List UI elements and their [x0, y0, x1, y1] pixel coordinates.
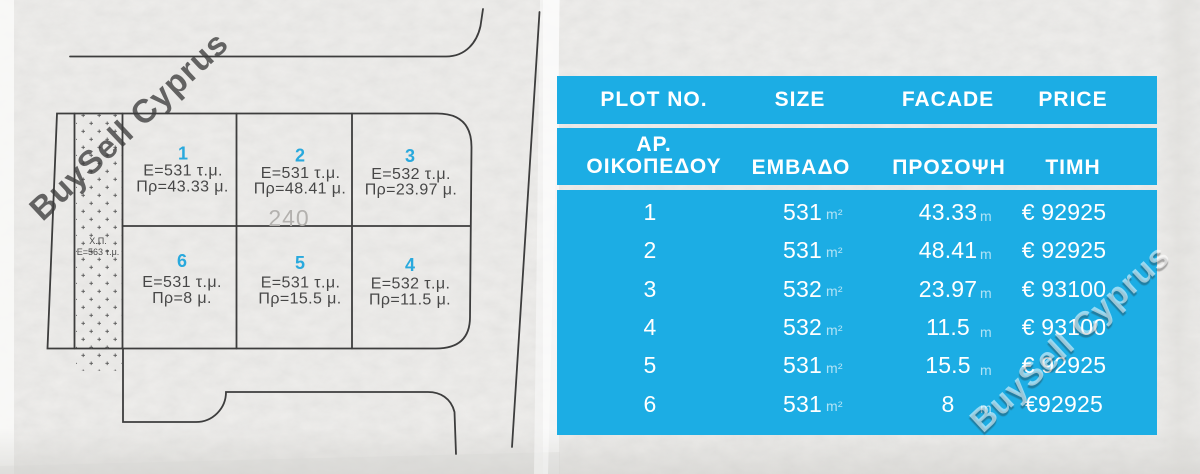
svg-text:E=531 τ.μ.: E=531 τ.μ.	[261, 165, 341, 182]
svg-text:3: 3	[405, 146, 415, 166]
svg-text:2: 2	[295, 146, 305, 166]
svg-text:Πρ=23.97 μ.: Πρ=23.97 μ.	[365, 182, 458, 199]
svg-text:E=563 τ.μ.: E=563 τ.μ.	[77, 247, 120, 257]
svg-text:5: 5	[295, 253, 305, 273]
svg-text:E=531 τ.μ.: E=531 τ.μ.	[261, 275, 341, 292]
svg-text:Πρ=15.5 μ.: Πρ=15.5 μ.	[258, 291, 341, 308]
svg-text:E=531 τ.μ.: E=531 τ.μ.	[143, 163, 223, 180]
svg-text:Πρ=48.41 μ.: Πρ=48.41 μ.	[254, 181, 347, 198]
svg-text:E=532 τ.μ.: E=532 τ.μ.	[371, 166, 451, 183]
svg-text:Πρ=11.5 μ.: Πρ=11.5 μ.	[369, 292, 451, 309]
svg-text:E=531 τ.μ.: E=531 τ.μ.	[142, 274, 222, 291]
svg-text:1: 1	[178, 144, 188, 164]
svg-text:Πρ=43.33 μ.: Πρ=43.33 μ.	[136, 179, 229, 196]
svg-text:Πρ=8 μ.: Πρ=8 μ.	[152, 290, 212, 307]
svg-text:Χ.Π.: Χ.Π.	[89, 236, 107, 246]
svg-text:4: 4	[405, 255, 415, 275]
svg-text:240: 240	[268, 205, 309, 231]
svg-text:E=532 τ.μ.: E=532 τ.μ.	[371, 276, 451, 293]
svg-text:6: 6	[177, 251, 187, 271]
